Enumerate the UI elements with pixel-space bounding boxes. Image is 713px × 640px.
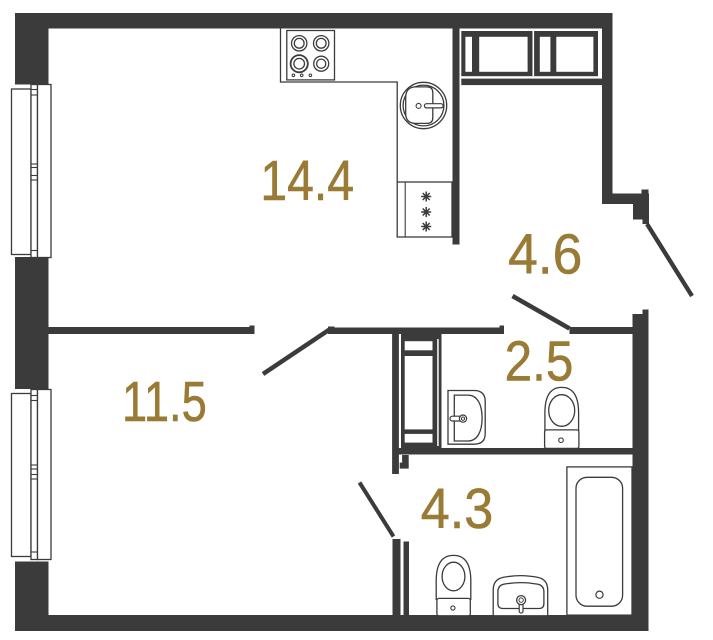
svg-text:4.6: 4.6 xyxy=(508,222,582,286)
svg-text:14.4: 14.4 xyxy=(260,149,354,213)
svg-text:4.3: 4.3 xyxy=(421,477,494,541)
svg-text:2.5: 2.5 xyxy=(505,330,574,393)
svg-text:11.5: 11.5 xyxy=(122,369,207,433)
